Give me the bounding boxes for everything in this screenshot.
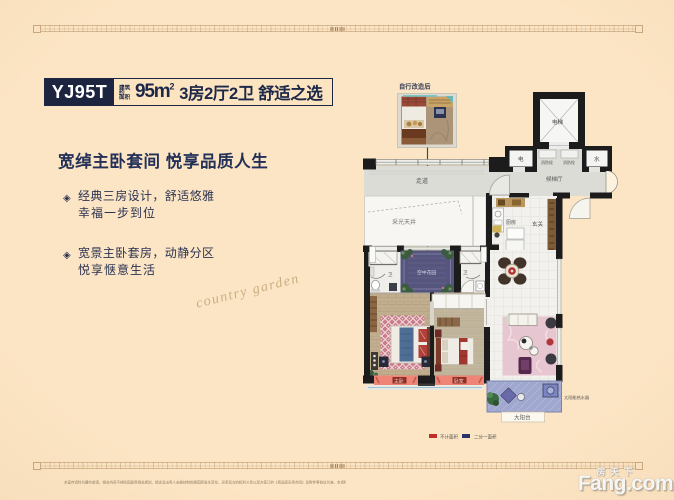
svg-text:水: 水 [594, 155, 600, 163]
svg-text:消防栓: 消防栓 [541, 159, 553, 165]
svg-text:厨房: 厨房 [506, 219, 516, 226]
svg-text:大阳台: 大阳台 [514, 414, 531, 422]
svg-text:消防栓: 消防栓 [563, 159, 575, 165]
svg-text:卫: 卫 [388, 272, 393, 277]
svg-text:电梯: 电梯 [552, 118, 564, 126]
svg-text:候梯厅: 候梯厅 [546, 175, 563, 183]
svg-text:玄关: 玄关 [532, 220, 544, 228]
svg-text:采光天井: 采光天井 [392, 218, 416, 226]
svg-text:空中花园: 空中花园 [417, 269, 436, 276]
svg-text:走道: 走道 [416, 177, 428, 185]
svg-text:二分一面积: 二分一面积 [474, 434, 497, 441]
svg-text:卧室: 卧室 [454, 378, 464, 385]
svg-text:自行改造后: 自行改造后 [399, 82, 431, 91]
svg-text:太阳能热水器: 太阳能热水器 [564, 394, 590, 401]
svg-text:主卧: 主卧 [394, 378, 404, 385]
svg-text:卫: 卫 [463, 270, 468, 275]
svg-text:电: 电 [518, 155, 524, 163]
svg-text:不计面积: 不计面积 [440, 434, 458, 441]
